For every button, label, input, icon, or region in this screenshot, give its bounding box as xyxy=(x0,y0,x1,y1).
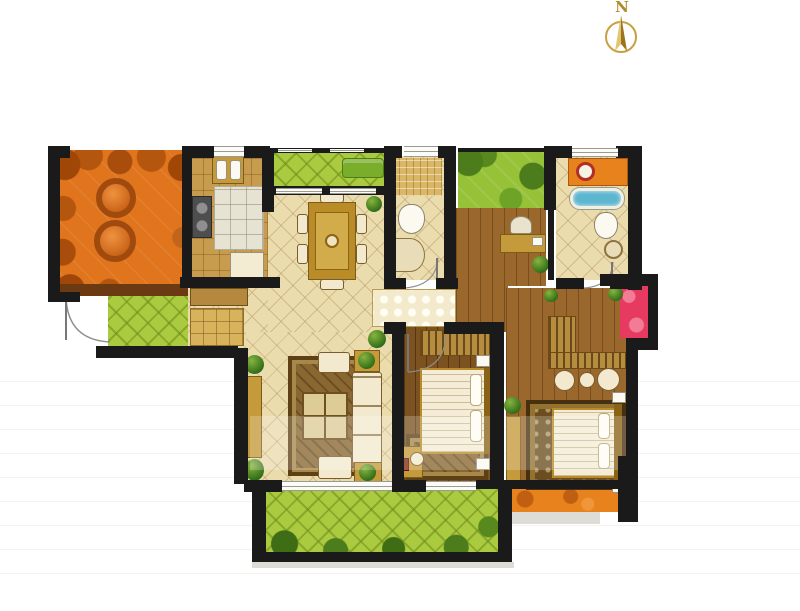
wall xyxy=(392,480,426,492)
wall xyxy=(444,322,494,334)
plant-icon xyxy=(544,289,558,302)
scanline xyxy=(0,573,800,574)
closet-rack xyxy=(548,352,626,369)
balcony-shadow xyxy=(252,562,514,568)
wall xyxy=(48,292,80,302)
wall xyxy=(628,146,642,290)
wall xyxy=(384,278,406,289)
wall xyxy=(544,152,556,210)
plant-icon xyxy=(504,397,521,414)
watermark-band xyxy=(250,416,630,470)
bush-icon xyxy=(608,287,623,301)
study-garden xyxy=(458,150,546,208)
window xyxy=(214,146,244,157)
window xyxy=(330,149,364,152)
balcony-bench xyxy=(342,158,384,178)
wall xyxy=(618,456,638,522)
wall xyxy=(262,152,274,212)
wall xyxy=(458,148,546,152)
wall xyxy=(490,322,504,484)
dining-chair xyxy=(356,214,367,234)
wall xyxy=(384,150,396,280)
study-chair xyxy=(510,216,532,234)
window xyxy=(276,188,322,194)
south-balcony-garden xyxy=(266,486,498,554)
dining-table xyxy=(308,202,356,280)
wall xyxy=(252,552,512,562)
dining-chair xyxy=(356,244,367,264)
entry-cabinet xyxy=(190,308,244,346)
floor-plan-image: N xyxy=(0,0,800,611)
kitchen-counter xyxy=(214,186,264,250)
window xyxy=(572,148,618,157)
pillow xyxy=(470,374,482,406)
wall xyxy=(96,346,238,358)
armchair xyxy=(318,352,350,373)
shoe-cabinet xyxy=(190,288,248,306)
nightstand xyxy=(476,355,490,367)
stove-icon xyxy=(192,196,212,238)
nightstand xyxy=(612,392,626,403)
window-sliding-door xyxy=(282,481,392,491)
bathtub-icon xyxy=(570,188,624,209)
balcony-shadow xyxy=(506,512,600,524)
wall xyxy=(626,344,638,462)
bathroom-sink-icon xyxy=(395,238,425,272)
pouf xyxy=(597,368,620,391)
plant-icon xyxy=(532,256,549,273)
plant-icon xyxy=(366,196,382,212)
dining-chair xyxy=(320,279,344,290)
wall xyxy=(182,152,192,286)
window xyxy=(404,146,438,157)
wall xyxy=(252,482,266,562)
dining-chair xyxy=(297,214,308,234)
window xyxy=(330,188,376,194)
bathroom1-shower xyxy=(392,158,442,196)
window xyxy=(278,149,312,152)
window xyxy=(426,481,476,491)
basin-icon xyxy=(604,240,623,259)
dining-chair xyxy=(297,244,308,264)
wall xyxy=(556,278,584,289)
wall xyxy=(444,150,456,280)
wall xyxy=(48,146,60,302)
pouf xyxy=(579,372,595,388)
terrace-chair-icon xyxy=(94,220,136,262)
wall xyxy=(548,206,554,280)
wall xyxy=(180,277,280,288)
pouf xyxy=(554,370,575,391)
vanity-sink-icon xyxy=(576,162,595,181)
wall xyxy=(234,348,248,484)
toilet-icon xyxy=(398,204,425,234)
wall xyxy=(392,322,404,484)
toilet-icon xyxy=(594,212,618,239)
plant-icon xyxy=(358,352,375,369)
terrace-chair-icon xyxy=(96,178,136,218)
north-arrow-icon xyxy=(602,13,640,57)
red-flower-balcony xyxy=(620,286,650,338)
kitchen-sink xyxy=(212,156,244,184)
laptop-icon xyxy=(532,237,543,246)
wall xyxy=(498,482,512,556)
wall xyxy=(384,146,402,158)
